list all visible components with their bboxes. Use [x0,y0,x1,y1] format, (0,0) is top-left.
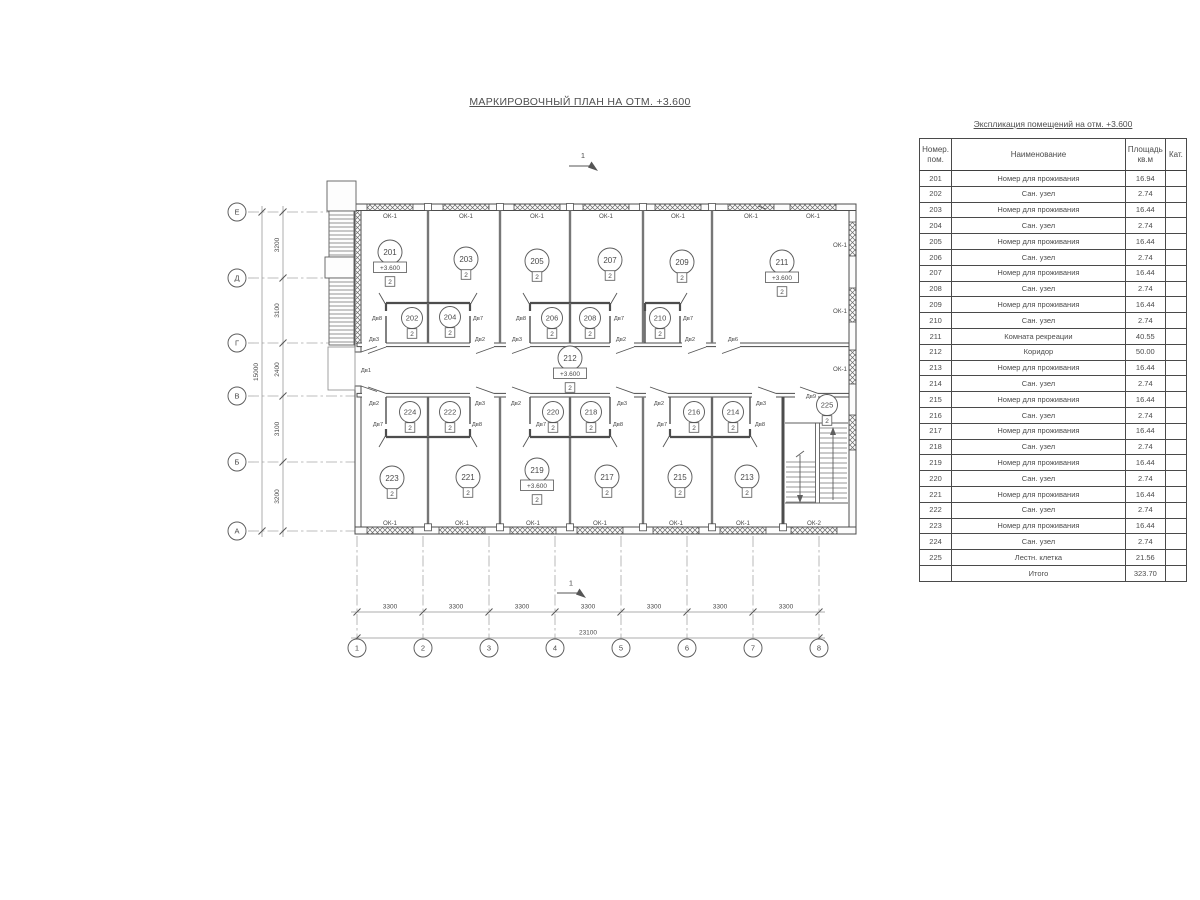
room-area-cell: 16.44 [1125,234,1165,250]
svg-text:1: 1 [581,151,585,160]
room-area-cell: 2.74 [1125,186,1165,202]
room-marker-206: 2062 [542,308,563,339]
svg-text:2: 2 [658,331,662,338]
room-cat-cell [1165,234,1186,250]
room-name-cell: Сан. узел [952,249,1126,265]
door-label: Дв2 [475,337,485,343]
table-row: 210Сан. узел2.74 [920,313,1187,329]
room-number-cell: 205 [920,234,952,250]
room-cat-cell [1165,249,1186,265]
corridor-walls [357,341,849,398]
room-marker-202: 2022 [402,308,423,339]
room-area-cell: 2.74 [1125,281,1165,297]
room-name-cell: Сан. узел [952,186,1126,202]
room-marker-210: 2102 [650,308,671,339]
svg-text:2: 2 [410,331,414,338]
svg-text:3300: 3300 [581,604,596,611]
room-marker-222: 2222 [440,402,461,433]
header-category: Кат. [1165,139,1186,171]
svg-text:3300: 3300 [515,604,530,611]
svg-text:2: 2 [448,425,452,432]
room-name-cell: Номер для проживания [952,486,1126,502]
table-row: 211Комната рекреации40.55 [920,328,1187,344]
table-row: 209Номер для проживания16.44 [920,297,1187,313]
door-label: Дв3 [617,401,627,407]
room-area-cell: 2.74 [1125,407,1165,423]
room-cat-cell [1165,471,1186,487]
door-label: Дв2 [685,337,695,343]
svg-text:3300: 3300 [647,604,662,611]
room-number-cell: 214 [920,376,952,392]
table-row: 220Сан. узел2.74 [920,471,1187,487]
svg-text:В: В [234,392,239,401]
room-number-cell: 217 [920,423,952,439]
table-row: 206Сан. узел2.74 [920,249,1187,265]
room-number-cell: 208 [920,281,952,297]
door-label: Дв2 [616,337,626,343]
room-area-cell: 16.44 [1125,518,1165,534]
svg-text:213: 213 [740,473,754,482]
window-label: ОК-1 [833,308,847,315]
room-number-cell: 224 [920,534,952,550]
svg-text:205: 205 [530,257,544,266]
svg-text:3100: 3100 [274,303,281,318]
room-cat-cell [1165,518,1186,534]
header-name: Наименование [952,139,1126,171]
room-number-cell: 212 [920,344,952,360]
table-header-row: Номер. пом. Наименование Площадь кв.м Ка… [920,139,1187,171]
total-empty-cell [920,565,952,581]
table-row: 212Коридор50.00 [920,344,1187,360]
room-cat-cell [1165,297,1186,313]
svg-text:2: 2 [780,289,784,296]
table-row: 214Сан. узел2.74 [920,376,1187,392]
room-cat-cell [1165,186,1186,202]
svg-text:220: 220 [547,408,560,417]
svg-text:3100: 3100 [274,421,281,436]
room-name-cell: Номер для проживания [952,202,1126,218]
room-number-cell: 220 [920,471,952,487]
door-label: Дв8 [613,422,623,428]
room-cat-cell [1165,439,1186,455]
room-schedule-title: Экспликация помещений на отм. +3.600 [919,119,1187,129]
table-row: 204Сан. узел2.74 [920,218,1187,234]
window-label: ОК-1 [744,213,758,220]
room-area-cell: 2.74 [1125,439,1165,455]
svg-text:212: 212 [563,354,577,363]
svg-text:2: 2 [825,418,829,425]
room-name-cell: Сан. узел [952,376,1126,392]
room-area-cell: 21.56 [1125,550,1165,566]
room-area-cell: 2.74 [1125,534,1165,550]
door-label: Дв8 [516,316,526,322]
table-row: 205Номер для проживания16.44 [920,234,1187,250]
room-name-cell: Номер для проживания [952,234,1126,250]
room-marker-217: 2172 [595,465,619,497]
room-number-cell: 209 [920,297,952,313]
svg-text:3300: 3300 [383,604,398,611]
room-cat-cell [1165,344,1186,360]
room-marker-215: 2152 [668,465,692,497]
room-table-body: 201Номер для проживания16.94202Сан. узел… [920,171,1187,582]
room-marker-224: 2242 [400,402,421,433]
room-name-cell: Коридор [952,344,1126,360]
window-label: ОК-1 [833,366,847,373]
svg-text:2: 2 [390,491,394,498]
room-number-cell: 215 [920,392,952,408]
room-marker-221: 2212 [456,465,480,497]
svg-text:3200: 3200 [274,237,281,252]
table-row: 208Сан. узел2.74 [920,281,1187,297]
svg-text:215: 215 [673,473,687,482]
door-label: Дв2 [511,401,521,407]
svg-text:223: 223 [385,474,399,483]
room-number-cell: 213 [920,360,952,376]
svg-text:2: 2 [589,425,593,432]
svg-text:2: 2 [605,490,609,497]
room-name-cell: Сан. узел [952,313,1126,329]
svg-text:+3.600: +3.600 [380,265,400,272]
external-staircase [325,181,377,392]
svg-text:7: 7 [751,644,755,653]
window-label: ОК-1 [530,213,544,220]
svg-text:2: 2 [680,275,684,282]
svg-text:2: 2 [568,385,572,392]
room-cat-cell [1165,407,1186,423]
total-area-cell: 323.70 [1125,565,1165,581]
room-name-cell: Номер для проживания [952,297,1126,313]
door-label: Дв7 [536,422,546,428]
header-area: Площадь кв.м [1125,139,1165,171]
room-cat-cell [1165,486,1186,502]
room-marker-211: 211+3.6002 [766,250,799,296]
table-row: 224Сан. узел2.74 [920,534,1187,550]
door-label: Дв6 [728,337,738,343]
room-number-cell: 211 [920,328,952,344]
room-marker-219: 219+3.6002 [521,458,554,504]
table-row: 207Номер для проживания16.44 [920,265,1187,281]
svg-text:2: 2 [731,425,735,432]
svg-text:211: 211 [776,258,789,267]
svg-text:3300: 3300 [449,604,464,611]
room-number-cell: 216 [920,407,952,423]
room-name-cell: Сан. узел [952,218,1126,234]
room-name-cell: Сан. узел [952,471,1126,487]
room-number-cell: 222 [920,502,952,518]
room-area-cell: 16.44 [1125,423,1165,439]
room-name-cell: Лестн. клетка [952,550,1126,566]
svg-text:Г: Г [235,339,239,348]
door-label: Дв8 [472,422,482,428]
table-row: 202Сан. узел2.74 [920,186,1187,202]
svg-text:204: 204 [444,313,457,322]
svg-text:201: 201 [383,248,397,257]
table-row: 219Номер для проживания16.44 [920,455,1187,471]
svg-text:206: 206 [546,314,559,323]
room-cat-cell [1165,502,1186,518]
room-area-cell: 16.94 [1125,171,1165,187]
svg-text:207: 207 [603,256,617,265]
room-name-cell: Номер для проживания [952,423,1126,439]
room-number-cell: 219 [920,455,952,471]
svg-text:3300: 3300 [713,604,728,611]
svg-text:6: 6 [685,644,689,653]
room-name-cell: Комната рекреации [952,328,1126,344]
room-area-cell: 2.74 [1125,471,1165,487]
table-row: 203Номер для проживания16.44 [920,202,1187,218]
room-marker-223: 2232 [380,466,404,498]
svg-text:218: 218 [585,408,598,417]
svg-text:202: 202 [406,314,419,323]
room-cat-cell [1165,534,1186,550]
total-label-cell: Итого [952,565,1126,581]
window-label: ОК-1 [671,213,685,220]
room-area-cell: 16.44 [1125,265,1165,281]
room-marker-203: 2032 [454,247,478,279]
svg-text:2: 2 [464,272,468,279]
room-number-cell: 207 [920,265,952,281]
room-area-cell: 16.44 [1125,392,1165,408]
svg-text:2: 2 [678,490,682,497]
svg-text:+3.600: +3.600 [560,371,580,378]
window-label: ОК-2 [807,520,821,527]
room-cat-cell [1165,218,1186,234]
room-name-cell: Номер для проживания [952,171,1126,187]
room-cat-cell [1165,202,1186,218]
svg-text:2: 2 [535,497,539,504]
svg-text:2: 2 [448,330,452,337]
room-area-cell: 2.74 [1125,502,1165,518]
table-row: 215Номер для проживания16.44 [920,392,1187,408]
svg-text:Д: Д [234,274,239,283]
window-label: ОК-1 [455,520,469,527]
room-name-cell: Номер для проживания [952,455,1126,471]
door-label: Дв3 [475,401,485,407]
room-name-cell: Номер для проживания [952,392,1126,408]
room-number-cell: 201 [920,171,952,187]
room-number-cell: 206 [920,249,952,265]
room-cat-cell [1165,281,1186,297]
door-label: Дв3 [369,337,379,343]
room-marker-201: 201+3.6002 [374,240,407,286]
svg-text:+3.600: +3.600 [772,275,792,282]
room-number-cell: 218 [920,439,952,455]
table-row: 222Сан. узел2.74 [920,502,1187,518]
room-marker-212: 212+3.6002 [554,346,587,392]
table-row: 225Лестн. клетка21.56 [920,550,1187,566]
room-cat-cell [1165,455,1186,471]
svg-text:210: 210 [654,314,667,323]
room-cat-cell [1165,360,1186,376]
window-label: ОК-1 [526,520,540,527]
window-label: ОК-1 [669,520,683,527]
room-cat-cell [1165,376,1186,392]
svg-text:216: 216 [688,408,701,417]
svg-text:А: А [234,527,239,536]
room-marker-204: 2042 [440,307,461,338]
svg-text:Б: Б [235,458,240,467]
svg-text:8: 8 [817,644,821,653]
door-label: Дв7 [683,316,693,322]
room-cat-cell [1165,265,1186,281]
svg-text:Е: Е [234,208,239,217]
room-area-cell: 2.74 [1125,249,1165,265]
room-cat-cell [1165,171,1186,187]
room-markers: 201+3.60022032205220722092211+3.60022022… [374,240,838,504]
svg-text:222: 222 [444,408,457,417]
table-row: 216Сан. узел2.74 [920,407,1187,423]
svg-text:219: 219 [530,466,544,475]
door-label: Дв2 [369,401,379,407]
svg-text:2: 2 [466,490,470,497]
svg-text:221: 221 [461,473,475,482]
room-number-cell: 210 [920,313,952,329]
room-name-cell: Номер для проживания [952,518,1126,534]
room-number-cell: 204 [920,218,952,234]
svg-text:217: 217 [600,473,614,482]
stairwell [758,206,848,503]
room-number-cell: 223 [920,518,952,534]
room-area-cell: 2.74 [1125,313,1165,329]
svg-text:2: 2 [408,425,412,432]
table-row: 218Сан. узел2.74 [920,439,1187,455]
room-marker-213: 2132 [735,465,759,497]
svg-text:2: 2 [388,279,392,286]
window-label: ОК-1 [593,520,607,527]
room-cat-cell [1165,423,1186,439]
window-label: ОК-1 [736,520,750,527]
room-marker-218: 2182 [581,402,602,433]
room-area-cell: 16.44 [1125,202,1165,218]
room-cat-cell [1165,313,1186,329]
room-area-cell: 50.00 [1125,344,1165,360]
svg-text:3300: 3300 [779,604,794,611]
room-name-cell: Номер для проживания [952,265,1126,281]
svg-text:5: 5 [619,644,623,653]
table-total-row: Итого323.70 [920,565,1187,581]
room-schedule: Экспликация помещений на отм. +3.600 Ном… [919,119,1187,582]
window-label: ОК-1 [383,520,397,527]
room-name-cell: Сан. узел [952,502,1126,518]
svg-text:203: 203 [459,255,473,264]
table-row: 213Номер для проживания16.44 [920,360,1187,376]
svg-text:1: 1 [569,579,573,588]
window-label: ОК-1 [599,213,613,220]
svg-text:2: 2 [421,644,425,653]
door-label: Дв7 [373,422,383,428]
door-label: Дв7 [614,316,624,322]
door-label: Дв8 [372,316,382,322]
room-number-cell: 202 [920,186,952,202]
room-name-cell: Сан. узел [952,439,1126,455]
room-area-cell: 40.55 [1125,328,1165,344]
svg-text:2: 2 [550,331,554,338]
door-label: Дв1 [361,368,371,374]
room-name-cell: Сан. узел [952,534,1126,550]
room-area-cell: 2.74 [1125,376,1165,392]
svg-text:2: 2 [588,331,592,338]
table-row: 217Номер для проживания16.44 [920,423,1187,439]
room-cat-cell [1165,392,1186,408]
svg-text:3200: 3200 [274,489,281,504]
table-row: 201Номер для проживания16.94 [920,171,1187,187]
svg-text:+3.600: +3.600 [527,483,547,490]
room-area-cell: 16.44 [1125,455,1165,471]
room-number-cell: 225 [920,550,952,566]
room-cat-cell [1165,328,1186,344]
room-marker-209: 2092 [670,250,694,282]
svg-text:1: 1 [355,644,359,653]
window-label: ОК-1 [459,213,473,220]
svg-text:2: 2 [535,274,539,281]
door-label: Дв3 [756,401,766,407]
room-marker-207: 2072 [598,248,622,280]
svg-text:208: 208 [584,314,597,323]
door-label: Дв3 [512,337,522,343]
room-area-cell: 16.44 [1125,360,1165,376]
room-name-cell: Номер для проживания [952,360,1126,376]
svg-text:209: 209 [675,258,689,267]
window-label: ОК-1 [806,213,820,220]
room-cat-cell [1165,550,1186,566]
svg-text:2400: 2400 [274,362,281,377]
header-number: Номер. пом. [920,139,952,171]
table-row: 223Номер для проживания16.44 [920,518,1187,534]
table-row: 221Номер для проживания16.44 [920,486,1187,502]
room-table: Номер. пом. Наименование Площадь кв.м Ка… [919,138,1187,582]
svg-text:2: 2 [551,425,555,432]
room-area-cell: 2.74 [1125,218,1165,234]
room-name-cell: Сан. узел [952,407,1126,423]
room-marker-208: 2082 [580,308,601,339]
room-area-cell: 16.44 [1125,297,1165,313]
room-marker-214: 2142 [723,402,744,433]
room-name-cell: Сан. узел [952,281,1126,297]
room-marker-216: 2162 [684,402,705,433]
window-label: ОК-1 [383,213,397,220]
door-label: Дв7 [473,316,483,322]
total-cat-cell [1165,565,1186,581]
room-marker-205: 2052 [525,249,549,281]
room-number-cell: 203 [920,202,952,218]
room-number-cell: 221 [920,486,952,502]
door-label: Дв2 [654,401,664,407]
svg-text:2: 2 [608,273,612,280]
svg-text:214: 214 [727,408,740,417]
window-label: ОК-1 [833,242,847,249]
door-label: Дв9 [806,394,816,400]
door-label: Дв8 [755,422,765,428]
svg-text:15000: 15000 [253,363,260,381]
room-marker-225: 2252 [817,395,838,426]
svg-text:23100: 23100 [579,630,597,637]
svg-text:4: 4 [553,644,557,653]
svg-text:224: 224 [404,408,417,417]
door-label: Дв7 [657,422,667,428]
svg-text:225: 225 [821,401,834,410]
svg-text:3: 3 [487,644,491,653]
room-area-cell: 16.44 [1125,486,1165,502]
svg-text:2: 2 [745,490,749,497]
svg-text:2: 2 [692,425,696,432]
